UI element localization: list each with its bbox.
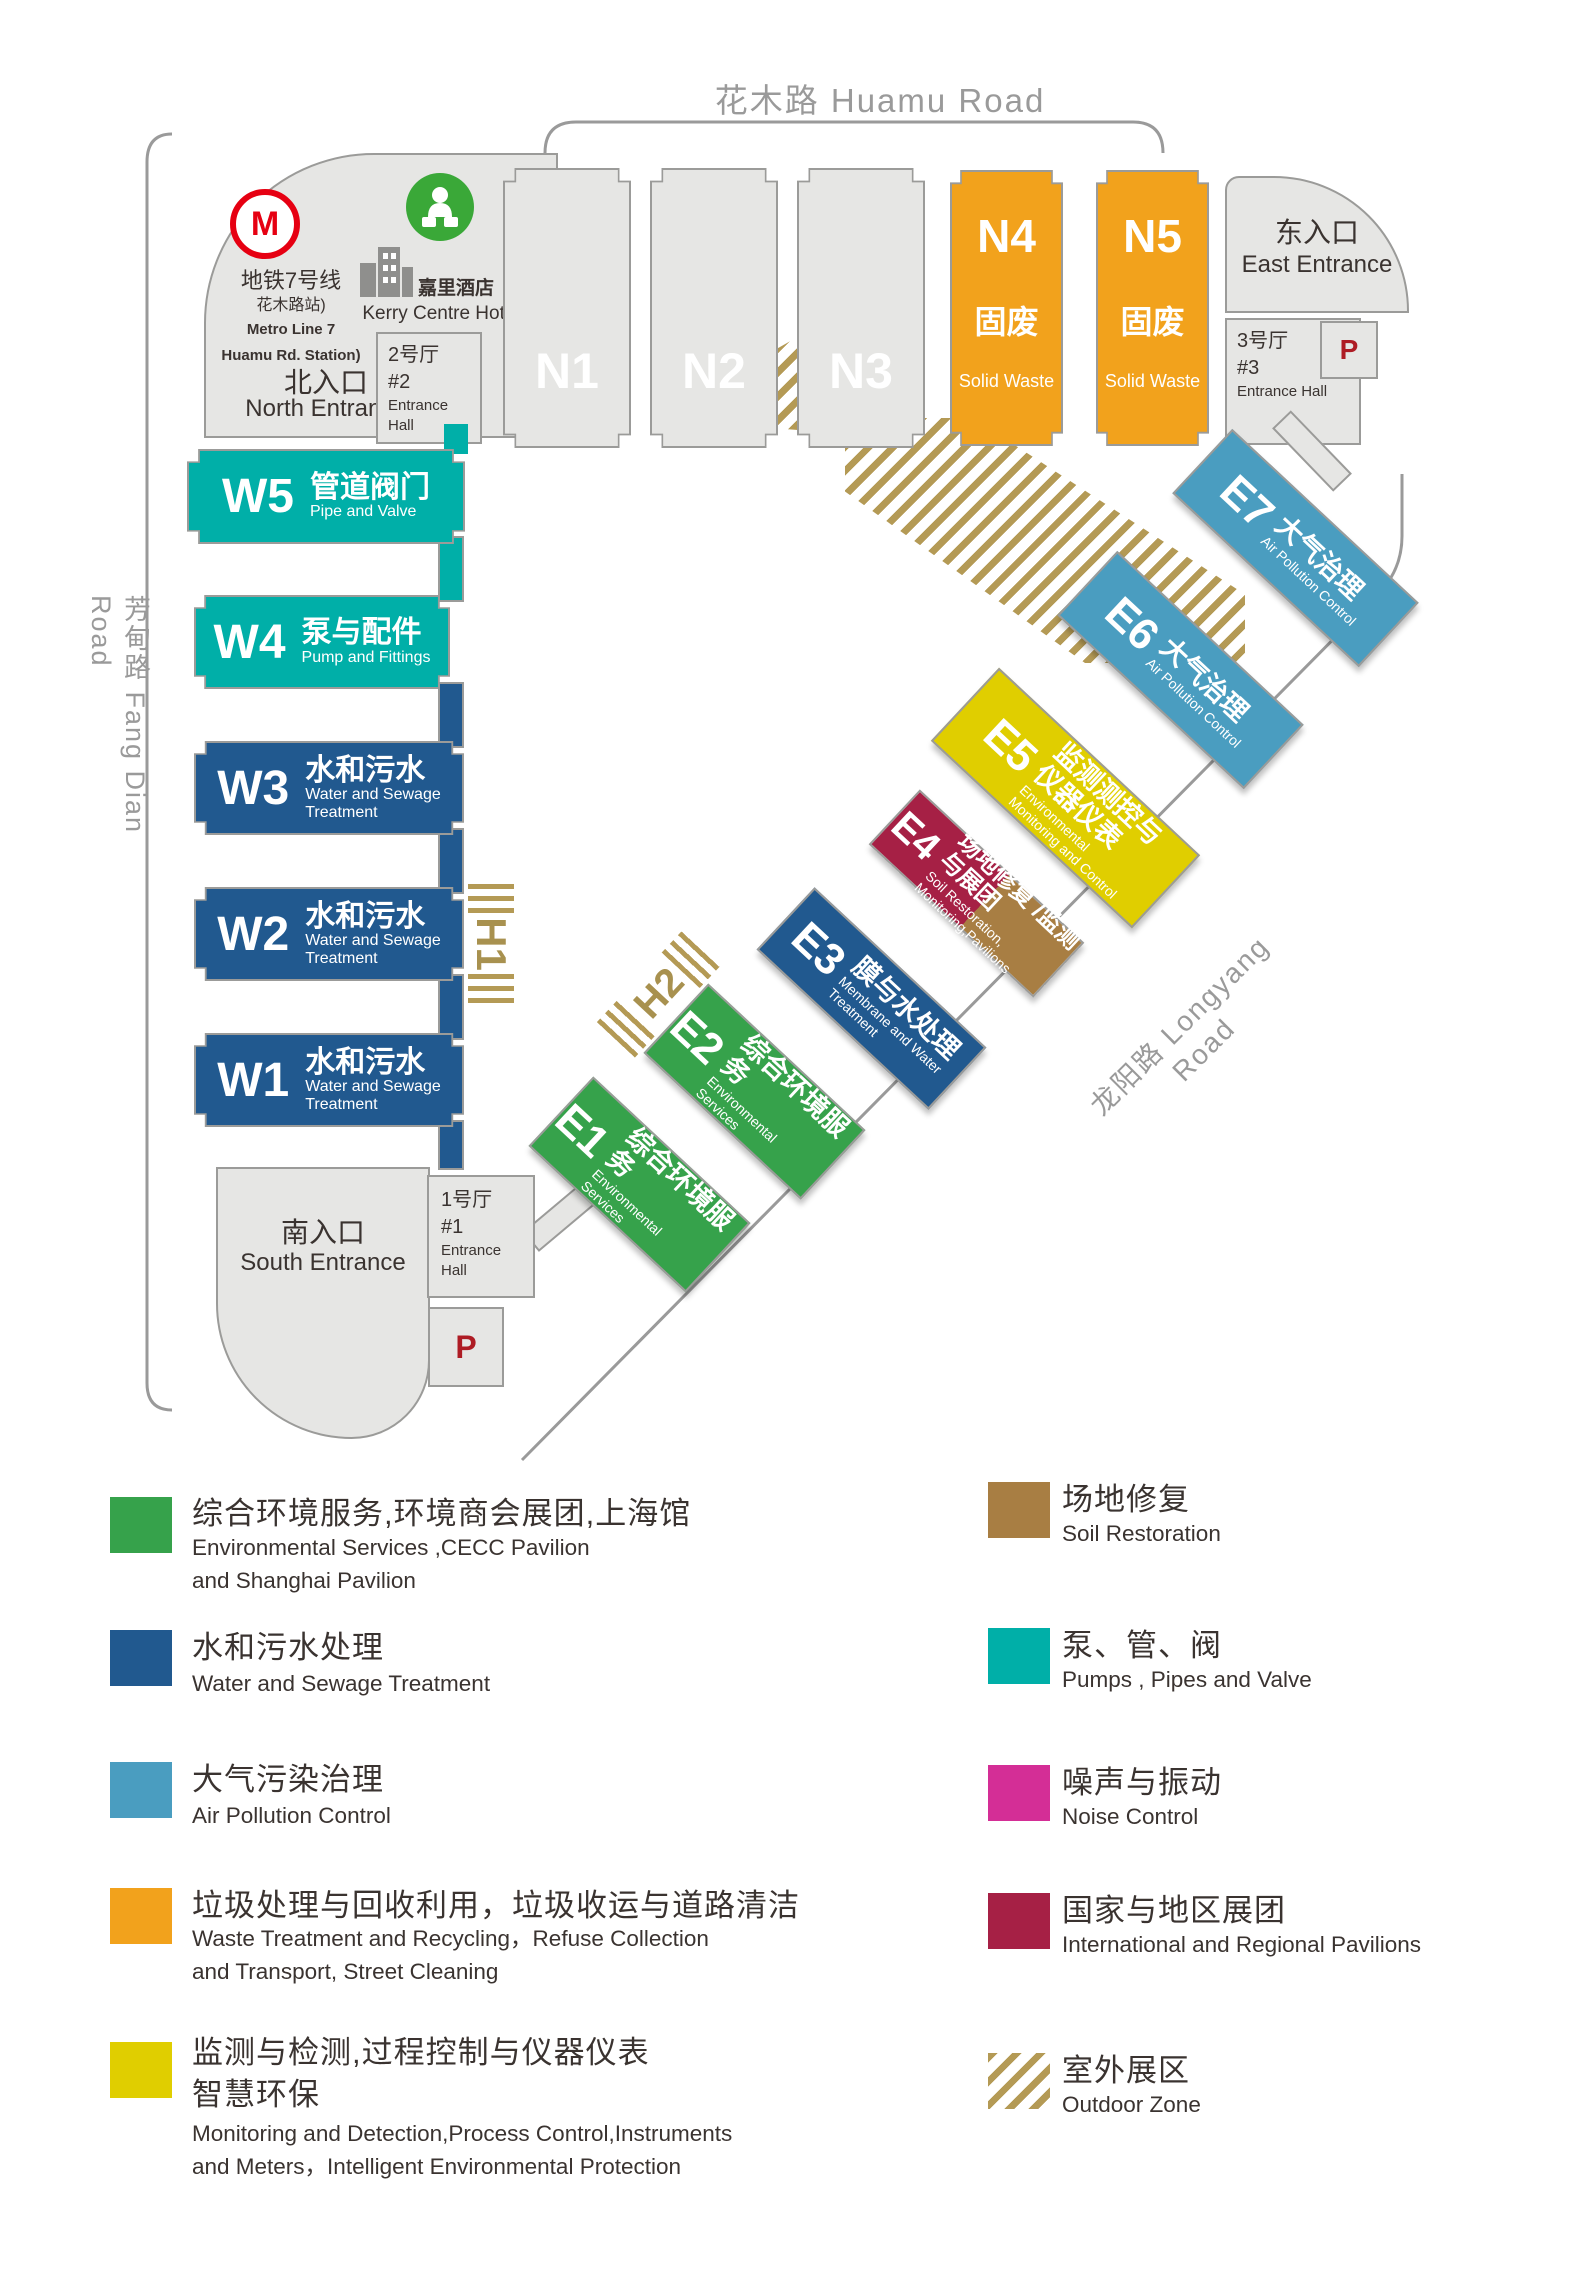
hall-w4-code: W4 (214, 615, 286, 670)
hall-w1-label-en: Water and Sewage Treatment (305, 1078, 440, 1113)
entrance-hall-3-en: Entrance Hall (1237, 382, 1349, 402)
hotel-label-zh: 嘉里酒店 (418, 273, 494, 300)
hall-w1-label-zh: 水和污水 (305, 1047, 440, 1079)
east-entrance-label-zh: 东入口 (1275, 211, 1359, 251)
legend-label-zh: 监测与检测,过程控制与仪器仪表 智慧环保 (192, 2032, 650, 2116)
outdoor-zone-h1: H1 (462, 884, 520, 1008)
hall-w5-code: W5 (222, 469, 294, 524)
h1-stripes-top (468, 884, 514, 914)
legend-label-en: Waste Treatment and Recycling，Refuse Col… (192, 1923, 709, 1988)
hall-w3-label-en: Water and Sewage Treatment (305, 786, 440, 821)
hotel-person-icon (406, 173, 474, 241)
legend-label-zh: 场地修复 (1062, 1474, 1190, 1519)
hall-w4[interactable]: W4 泵与配件 Pump and Fittings (194, 595, 450, 689)
legend-swatch (110, 1888, 172, 1944)
legend-label-zh: 泵、管、阀 (1062, 1620, 1222, 1665)
hall-n4[interactable]: N4 固废 Solid Waste (950, 170, 1063, 446)
legend-swatch (988, 1765, 1050, 1821)
legend-swatch (110, 1497, 172, 1553)
hall-n1[interactable]: N1 (503, 168, 631, 448)
hall-w3[interactable]: W3 水和污水 Water and Sewage Treatment (194, 741, 464, 835)
legend-label-en: Environmental Services ,CECC Pavilion an… (192, 1532, 590, 1597)
entrance-hall-2-num: #2 (388, 369, 470, 396)
legend-swatch (988, 1893, 1050, 1949)
w3-w2-connector (438, 828, 464, 894)
hall-n2[interactable]: N2 (650, 168, 778, 448)
hall-w3-code: W3 (217, 761, 289, 816)
hall-w4-label-zh: 泵与配件 (302, 617, 431, 649)
hall-n3-code: N3 (797, 342, 925, 400)
entrance-hall-1-num: #1 (441, 1214, 521, 1241)
hall-w1-code: W1 (217, 1053, 289, 1108)
hall-w2-label-zh: 水和污水 (305, 901, 440, 933)
legend-label-zh: 室外展区 (1062, 2045, 1190, 2090)
south-entrance-label-en: South Entrance (218, 1249, 428, 1277)
hall-n5[interactable]: N5 固废 Solid Waste (1096, 170, 1209, 446)
legend-label-zh: 水和污水处理 (192, 1622, 384, 1667)
w4-w3-connector (438, 682, 464, 748)
w5-w4-connector (438, 536, 464, 602)
legend-label-en: International and Regional Pavilions (1062, 1929, 1421, 1962)
legend-swatch (110, 2042, 172, 2098)
metro-logo-icon: M (230, 189, 300, 259)
venue-map: 花木路 Huamu Road 芳甸路 Fang Dian Road 龙阳路 Lo… (0, 0, 1575, 2283)
legend-swatch (988, 1482, 1050, 1538)
legend-label-zh: 垃圾处理与回收利用，垃圾收运与道路清洁 (192, 1880, 800, 1925)
entrance-hall-1-zh: 1号厅 (441, 1187, 521, 1214)
legend-label-en: Monitoring and Detection,Process Control… (192, 2118, 732, 2183)
hall-w2-label-en: Water and Sewage Treatment (305, 932, 440, 967)
entrance-hall-1[interactable]: 1号厅 #1 Entrance Hall (427, 1175, 535, 1298)
legend-label-zh: 噪声与振动 (1062, 1757, 1222, 1802)
legend-label-en: Pumps , Pipes and Valve (1062, 1664, 1312, 1697)
hall-n5-label-zh: 固废 (1096, 297, 1209, 343)
legend-swatch (110, 1630, 172, 1686)
road-label-huamu: 花木路 Huamu Road (700, 74, 1060, 122)
hall-n3[interactable]: N3 (797, 168, 925, 448)
hall-n4-code: N4 (950, 209, 1063, 263)
hall-w3-label-zh: 水和污水 (305, 755, 440, 787)
hall-w2-code: W2 (217, 907, 289, 962)
legend-label-en: Soil Restoration (1062, 1518, 1221, 1551)
legend-label-en: Air Pollution Control (192, 1800, 391, 1833)
hall-w5-label-en: Pipe and Valve (310, 503, 430, 521)
hall-n5-label-en: Solid Waste (1096, 371, 1209, 392)
w1-bottom-connector (438, 1120, 464, 1170)
hall-w5[interactable]: W5 管道阀门 Pipe and Valve (187, 449, 465, 544)
legend-label-zh: 大气污染治理 (192, 1754, 384, 1799)
east-parking[interactable]: P (1320, 321, 1378, 379)
hall-n5-code: N5 (1096, 209, 1209, 263)
hall-w5-label-zh: 管道阀门 (310, 472, 430, 504)
legend-label-en: Noise Control (1062, 1801, 1198, 1834)
hall-n4-label-zh: 固废 (950, 297, 1063, 343)
east-entrance-label-en: East Entrance (1242, 251, 1393, 279)
legend-swatch (110, 1762, 172, 1818)
legend-label-en: Water and Sewage Treatment (192, 1668, 490, 1701)
legend-label-zh: 国家与地区展团 (1062, 1885, 1286, 1930)
road-label-fangdian: 芳甸路 Fang Dian Road (85, 595, 155, 895)
legend-label-zh: 综合环境服务,环境商会展团,上海馆 (192, 1488, 691, 1533)
south-parking[interactable]: P (428, 1307, 504, 1387)
legend-label-en: Outdoor Zone (1062, 2089, 1201, 2122)
hotel-building-icon (356, 241, 416, 302)
hall-n4-label-en: Solid Waste (950, 371, 1063, 392)
h1-stripes-bottom (468, 974, 514, 1004)
hall-w1[interactable]: W1 水和污水 Water and Sewage Treatment (194, 1033, 464, 1127)
south-entrance-label-zh: 南入口 (218, 1211, 428, 1251)
outdoor-zone-h1-label: H1 (461, 917, 521, 971)
entrance-hall-1-en: Entrance Hall (441, 1241, 521, 1282)
legend-swatch (988, 1628, 1050, 1684)
w2-w1-connector (438, 974, 464, 1040)
entrance-hall-2-zh: 2号厅 (388, 342, 470, 369)
hall-n2-code: N2 (650, 342, 778, 400)
hall-w2[interactable]: W2 水和污水 Water and Sewage Treatment (194, 887, 464, 981)
hall-w4-label-en: Pump and Fittings (302, 649, 431, 667)
hall-n1-code: N1 (503, 342, 631, 400)
legend-swatch-outdoor (988, 2053, 1050, 2109)
